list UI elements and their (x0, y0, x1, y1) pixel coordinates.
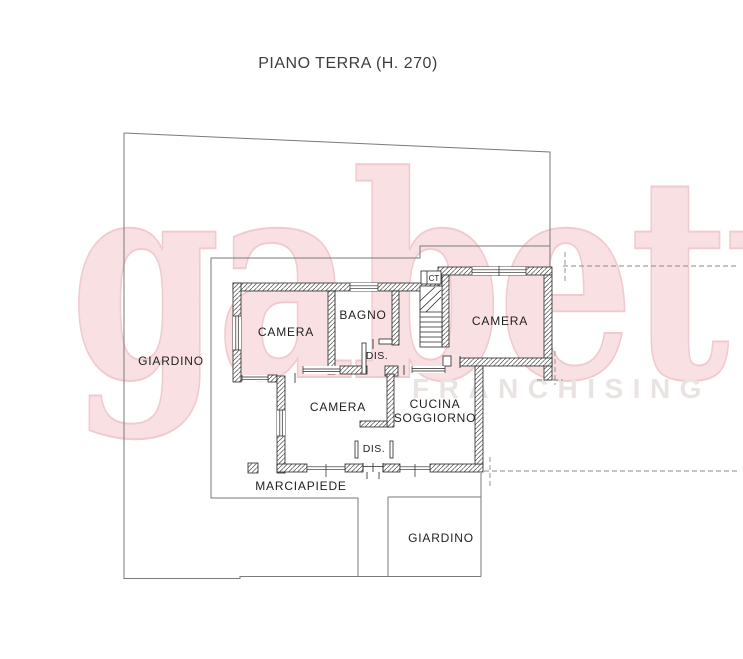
area-label-giardino-west: GIARDINO (138, 354, 204, 368)
room-label-cucina: CUCINA (410, 397, 461, 411)
floor-plan-drawing: gabetti FRANCHISING PIANO TERRA (H. 270) (0, 0, 743, 659)
area-label-giardino-south: GIARDINO (408, 531, 474, 545)
room-label-camera-south: CAMERA (310, 400, 366, 414)
plan-title: PIANO TERRA (H. 270) (258, 55, 438, 72)
room-label-camera-ne: CAMERA (472, 314, 528, 328)
room-label-soggiorno: SOGGIORNO (394, 411, 477, 425)
room-label-dis-lower: DIS. (363, 443, 385, 455)
staircase (420, 286, 442, 347)
exterior-pillar (248, 463, 258, 473)
watermark: gabetti FRANCHISING (70, 114, 743, 443)
boiler-label: CT (429, 274, 440, 283)
room-label-dis-upper: DIS. (366, 350, 388, 362)
door-leaf (443, 356, 451, 366)
room-label-bagno: BAGNO (339, 308, 386, 322)
room-label-camera-nw: CAMERA (258, 325, 314, 339)
floor-plan-page: gabetti FRANCHISING PIANO TERRA (H. 270) (0, 0, 743, 659)
area-label-marciapiede: MARCIAPIEDE (255, 479, 346, 493)
